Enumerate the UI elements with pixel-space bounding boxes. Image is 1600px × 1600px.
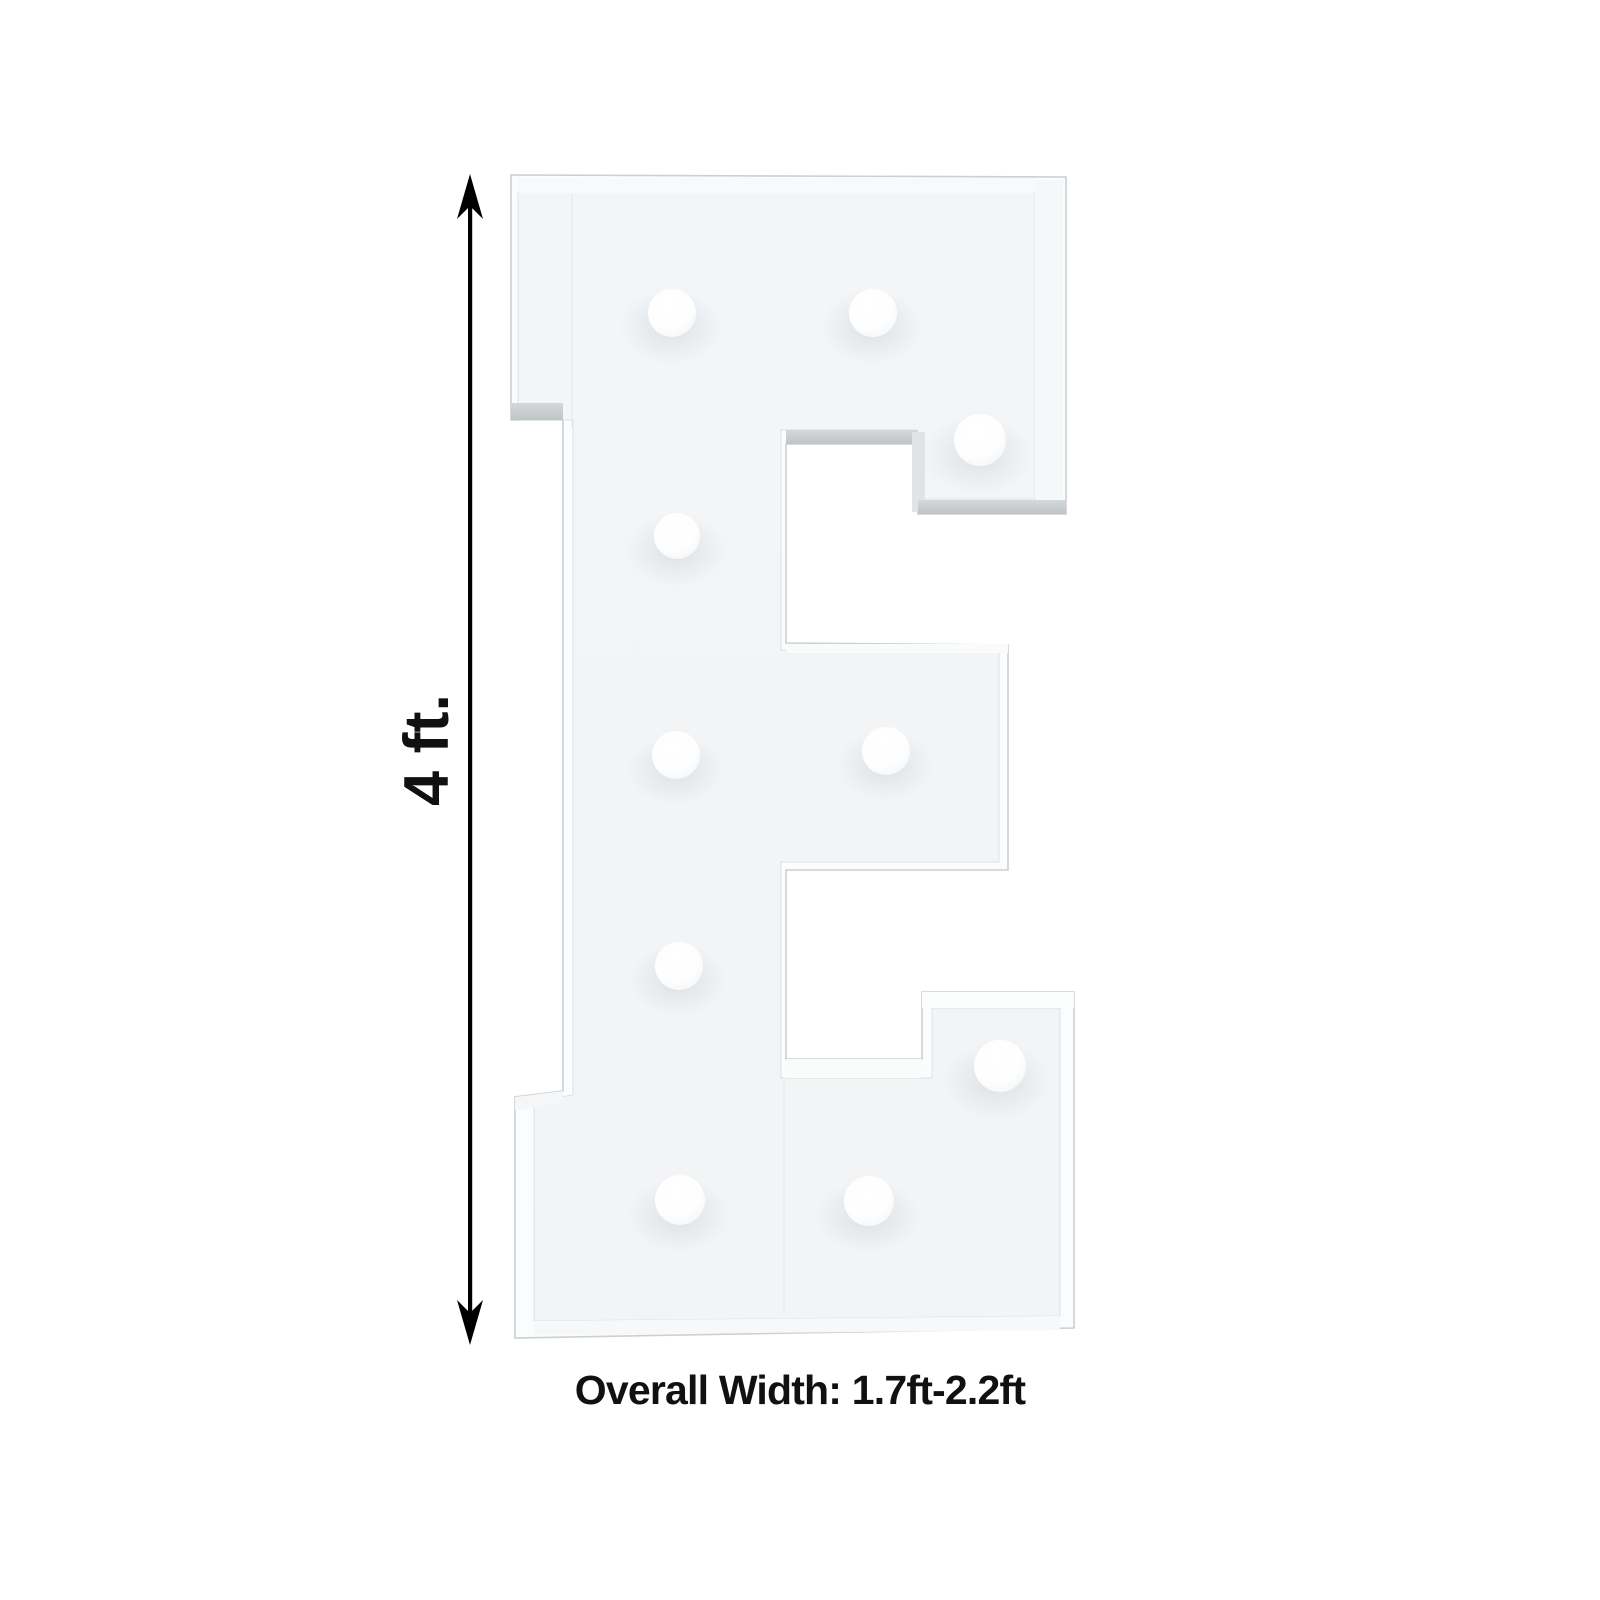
svg-text:Overall Width: 1.7ft-2.2ft: Overall Width: 1.7ft-2.2ft xyxy=(575,1367,1027,1413)
svg-text:4 ft.: 4 ft. xyxy=(392,694,462,806)
